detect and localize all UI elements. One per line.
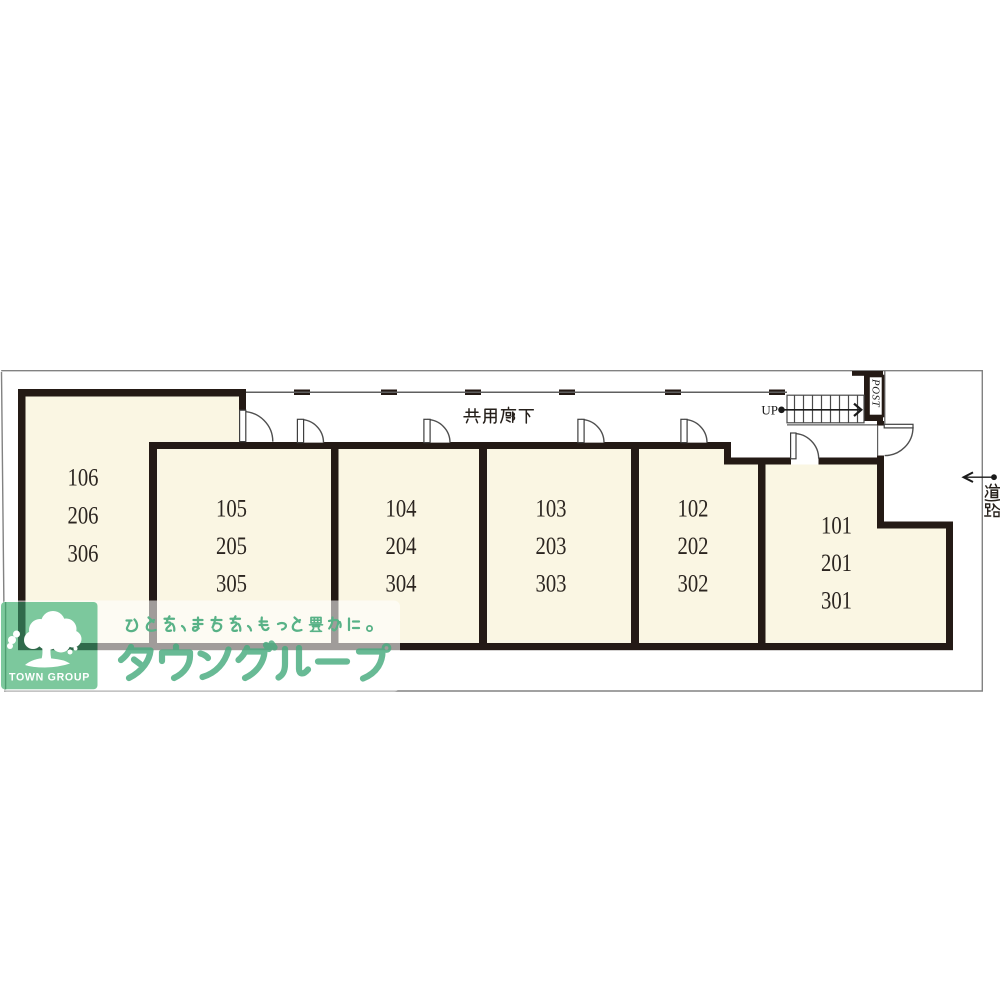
svg-text:202: 202 (678, 531, 709, 560)
svg-text:301: 301 (821, 586, 852, 615)
svg-text:303: 303 (536, 569, 567, 598)
svg-text:203: 203 (536, 531, 567, 560)
svg-text:206: 206 (68, 501, 99, 530)
svg-text:106: 106 (68, 463, 99, 492)
svg-text:104: 104 (386, 494, 417, 523)
svg-text:204: 204 (386, 531, 417, 560)
svg-text:101: 101 (821, 511, 852, 540)
svg-text:103: 103 (536, 494, 567, 523)
svg-text:205: 205 (216, 531, 247, 560)
svg-text:POST: POST (869, 378, 881, 408)
svg-text:302: 302 (678, 569, 709, 598)
svg-text:306: 306 (68, 539, 99, 568)
svg-text:102: 102 (678, 494, 709, 523)
svg-text:304: 304 (386, 569, 417, 598)
svg-text:305: 305 (216, 569, 247, 598)
svg-text:TOWN GROUP: TOWN GROUP (9, 671, 90, 683)
svg-text:201: 201 (821, 548, 852, 577)
svg-text:105: 105 (216, 494, 247, 523)
svg-text:UP: UP (761, 402, 778, 417)
